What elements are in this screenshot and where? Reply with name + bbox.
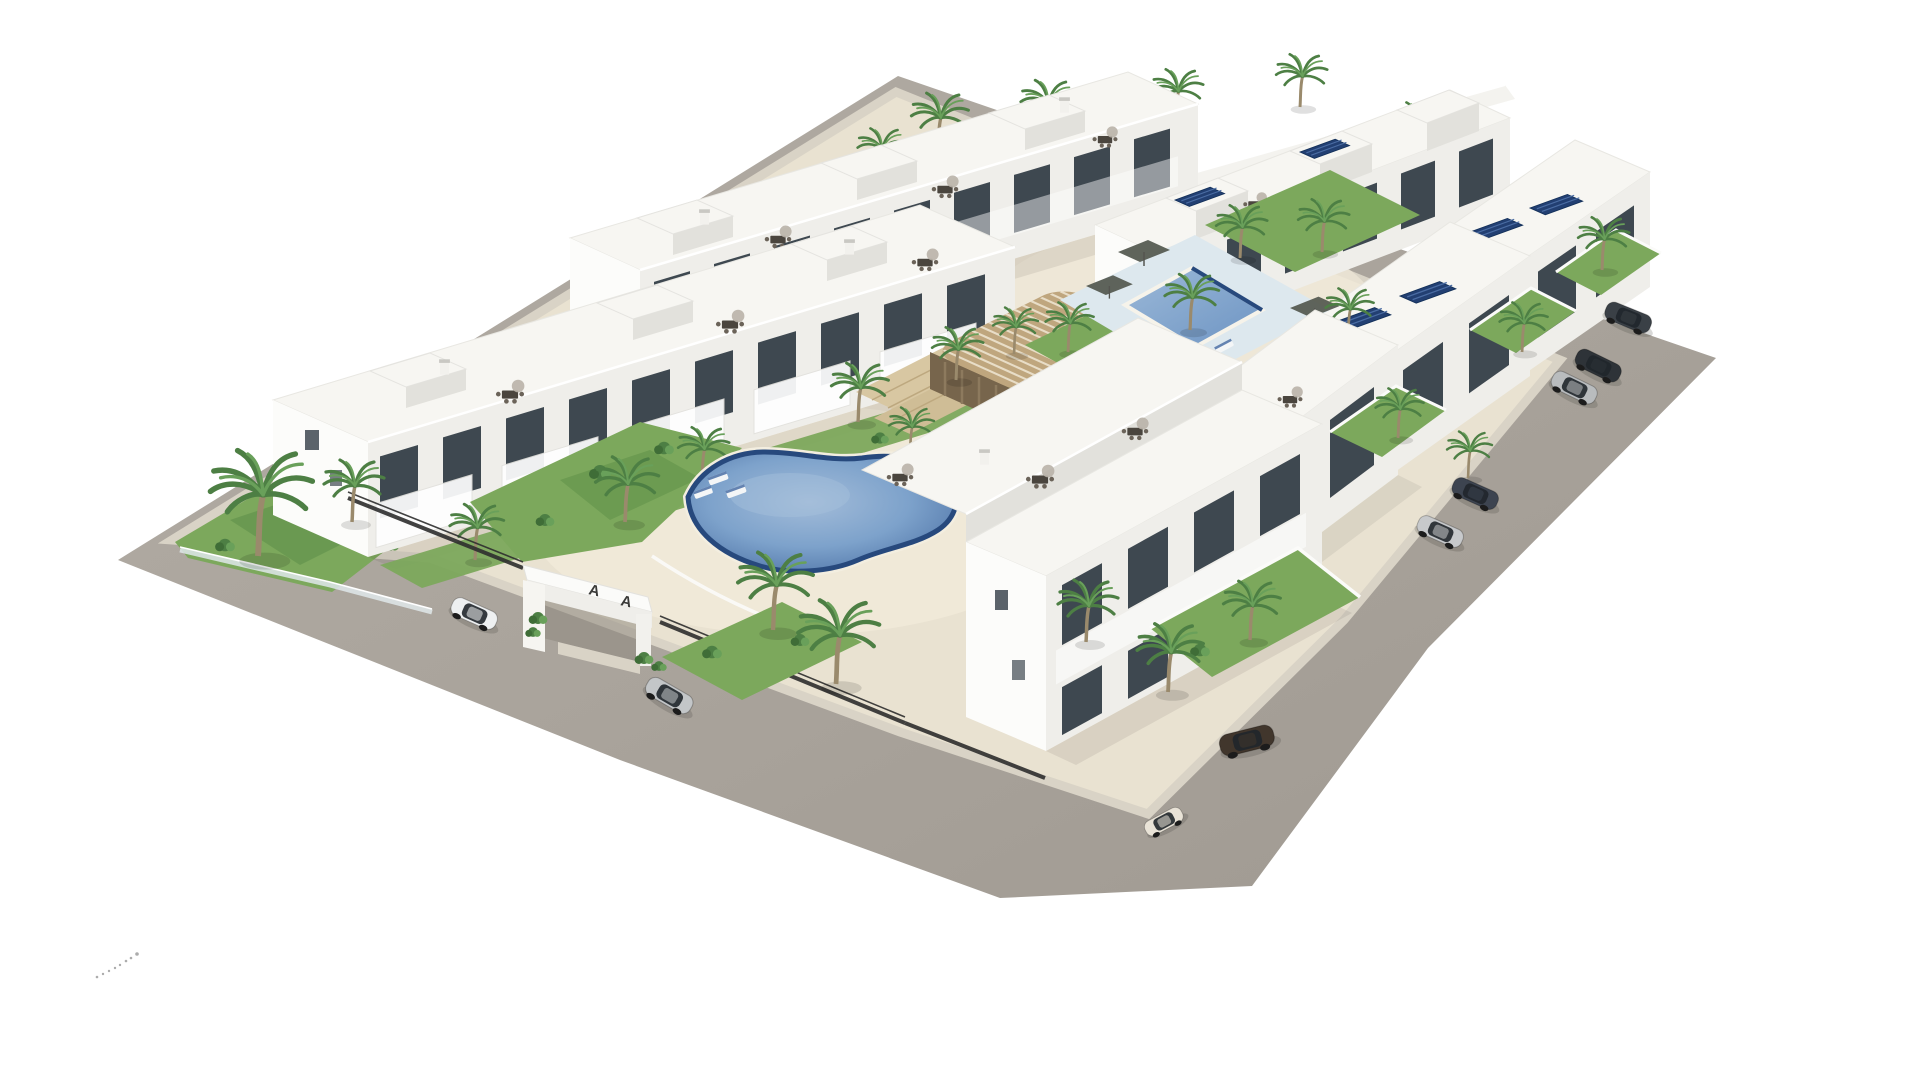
render-scene: Aerial 3D rendering of a modern white re… [0,0,1920,1080]
architectural-render-canvas: Aerial 3D rendering of a modern white re… [0,0,1920,1080]
faint-dotted-marks [96,952,139,978]
